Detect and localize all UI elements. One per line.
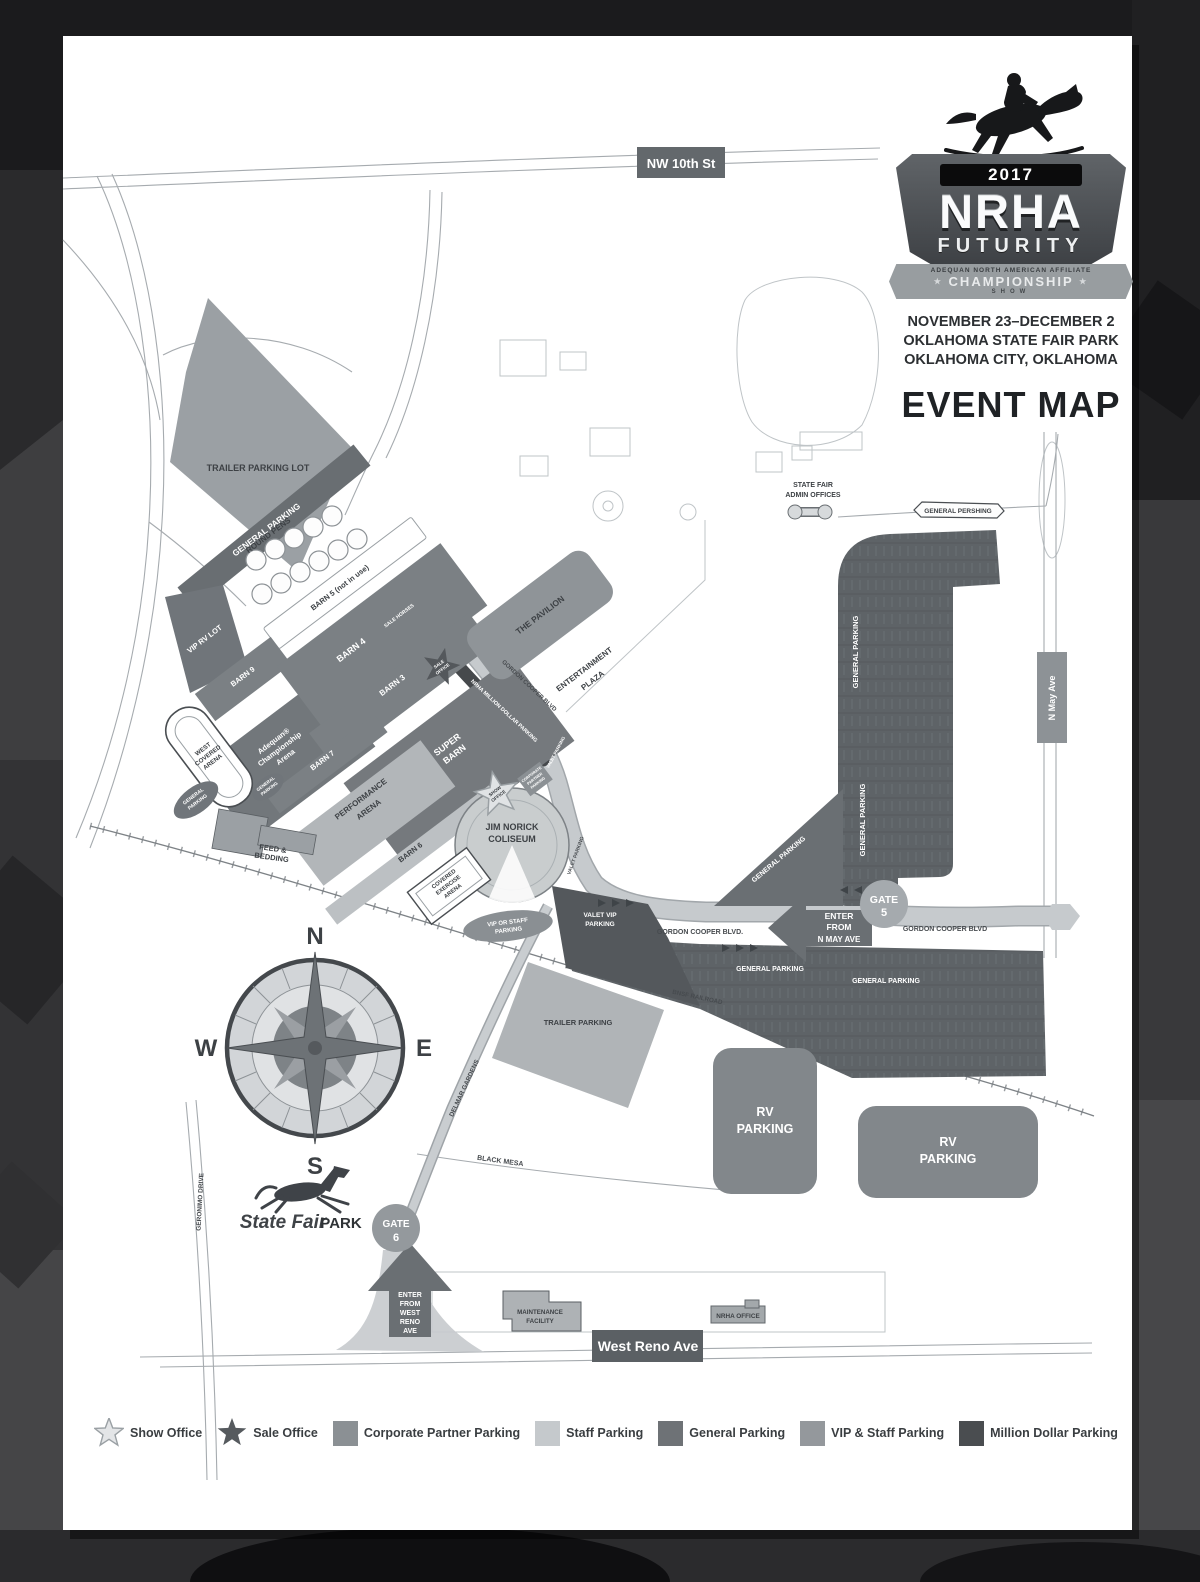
label-valet-vip-2: PARKING [585,921,615,928]
label-west-reno-ave: West Reno Ave [598,1338,699,1354]
label-enter-wreno-4: RENO [400,1319,421,1326]
vip-staff-parking-swatch [800,1421,825,1446]
legend-label-general: General Parking [689,1426,785,1440]
legend-item-show-office: Show Office [94,1418,202,1448]
label-valet-vip-1: VALET VIP [583,912,617,919]
event-venue: OKLAHOMA STATE FAIR PARK [883,332,1139,351]
label-gate5-num: 5 [881,907,887,919]
label-nrha-office: NRHA OFFICE [716,1313,760,1320]
legend-label-vip-staff: VIP & Staff Parking [831,1426,944,1440]
logo-org: NRHA [896,188,1126,235]
event-date-range: NOVEMBER 23–DECEMBER 2 [883,313,1139,332]
nrha-logo-shield: 2017 NRHA FUTURITY [896,154,1126,268]
gate-5-badge: GATE 5 [860,880,908,928]
label-maintenance-1: MAINTENANCE [517,1309,563,1316]
label-enter-wreno-1: ENTER [398,1292,422,1299]
label-gp-south-2: GENERAL PARKING [852,978,920,985]
label-enter-nmay-2: FROM [826,922,851,932]
label-gordon-cooper-west: GORDON COOPER BLVD. [657,929,743,936]
admin-walkway-end-east [818,505,832,519]
nrha-office-annex [745,1300,759,1308]
label-gate6-word: GATE [382,1219,409,1230]
logo-affiliate-line: ADEQUAN NORTH AMERICAN AFFILIATE [889,267,1133,274]
label-nw-10th: NW 10th St [647,156,716,171]
label-enter-wreno-3: WEST [400,1310,421,1317]
compass-e: E [416,1035,432,1062]
star-icon: ★ [934,277,943,286]
compass-w: W [195,1035,218,1062]
general-parking-swatch [658,1421,683,1446]
event-header: 2017 NRHA FUTURITY ADEQUAN NORTH AMERICA… [883,58,1139,426]
logo-show-word: SHOW [889,289,1133,295]
legend-item-corporate: Corporate Partner Parking [333,1421,520,1446]
label-park-bold: PARK [320,1215,362,1232]
legend-item-staff: Staff Parking [535,1421,643,1446]
event-city: OKLAHOMA CITY, OKLAHOMA [883,351,1139,370]
label-gate6-num: 6 [393,1232,399,1244]
million-dollar-parking-swatch [959,1421,984,1446]
rv-parking-west-area [713,1048,817,1194]
label-admin-2: ADMIN OFFICES [785,492,841,499]
page-title: EVENT MAP [883,384,1139,426]
label-gp-vert-1: GENERAL PARKING [851,616,860,689]
label-gordon-cooper-east: GORDON COOPER BLVD [903,926,987,933]
label-rv-2a: RV [939,1135,957,1149]
legend-item-sale-office: Sale Office [217,1418,318,1448]
label-n-may-ave: N May Ave [1047,676,1057,721]
legend-label-corporate: Corporate Partner Parking [364,1426,520,1440]
legend-label-million: Million Dollar Parking [990,1426,1118,1440]
star-icon: ★ [1079,277,1088,286]
legend-label-show-office: Show Office [130,1426,202,1440]
label-gp-vert-2: GENERAL PARKING [858,784,867,857]
label-coliseum-1: JIM NORICK [485,822,539,832]
legend-item-vip-staff: VIP & Staff Parking [800,1421,944,1446]
west-reno-ave-sign: West Reno Ave [592,1330,703,1362]
label-enter-nmay-3: N MAY AVE [818,935,861,944]
label-enter-wreno-2: FROM [400,1301,421,1308]
label-admin-1: STATE FAIR [793,482,833,489]
compass-s: S [307,1153,323,1180]
logo-ribbon: ADEQUAN NORTH AMERICAN AFFILIATE ★ CHAMP… [889,264,1133,299]
label-gp-south-1: GENERAL PARKING [736,966,804,973]
compass-n: N [306,923,323,950]
label-trailer-parking-lot: TRAILER PARKING LOT [207,463,310,473]
label-rv-1b: PARKING [737,1122,794,1136]
staff-parking-swatch [535,1421,560,1446]
label-maintenance-2: FACILITY [526,1318,554,1325]
n-may-ave-sign: N May Ave [1037,652,1067,743]
legend-item-million: Million Dollar Parking [959,1421,1118,1446]
nw-10th-st-sign: NW 10th St [637,147,725,178]
legend: Show Office Sale Office Corporate Partne… [94,1418,1034,1448]
screenshot-root: { "page": { "header": { "year": "2017", … [0,0,1200,1582]
logo-event: FUTURITY [896,235,1126,258]
label-state-fair-script: State Fair [240,1212,328,1233]
label-general-pershing: GENERAL PERSHING [924,508,991,515]
logo-championship-line: ★ CHAMPIONSHIP ★ [889,274,1133,289]
sale-office-star-icon [217,1418,247,1448]
label-enter-nmay-1: ENTER [825,911,854,921]
legend-item-general: General Parking [658,1421,785,1446]
general-pershing-sign: GENERAL PERSHING [914,502,1004,518]
legend-label-sale-office: Sale Office [253,1426,318,1440]
label-enter-wreno-5: AVE [403,1328,417,1335]
show-office-star-icon [94,1418,124,1448]
label-rv-1a: RV [756,1105,774,1119]
label-coliseum-2: COLISEUM [488,834,536,844]
corporate-parking-swatch [333,1421,358,1446]
logo-championship: CHAMPIONSHIP [949,274,1074,289]
label-gate5-word: GATE [870,894,898,906]
legend-label-staff: Staff Parking [566,1426,643,1440]
label-rv-2b: PARKING [920,1152,977,1166]
gate-6-badge: GATE 6 [372,1204,420,1252]
admin-walkway-end-west [788,505,802,519]
logo-year: 2017 [940,164,1083,186]
label-trailer-mid: TRAILER PARKING [544,1018,613,1027]
reining-horse-rider-icon [883,58,1139,154]
